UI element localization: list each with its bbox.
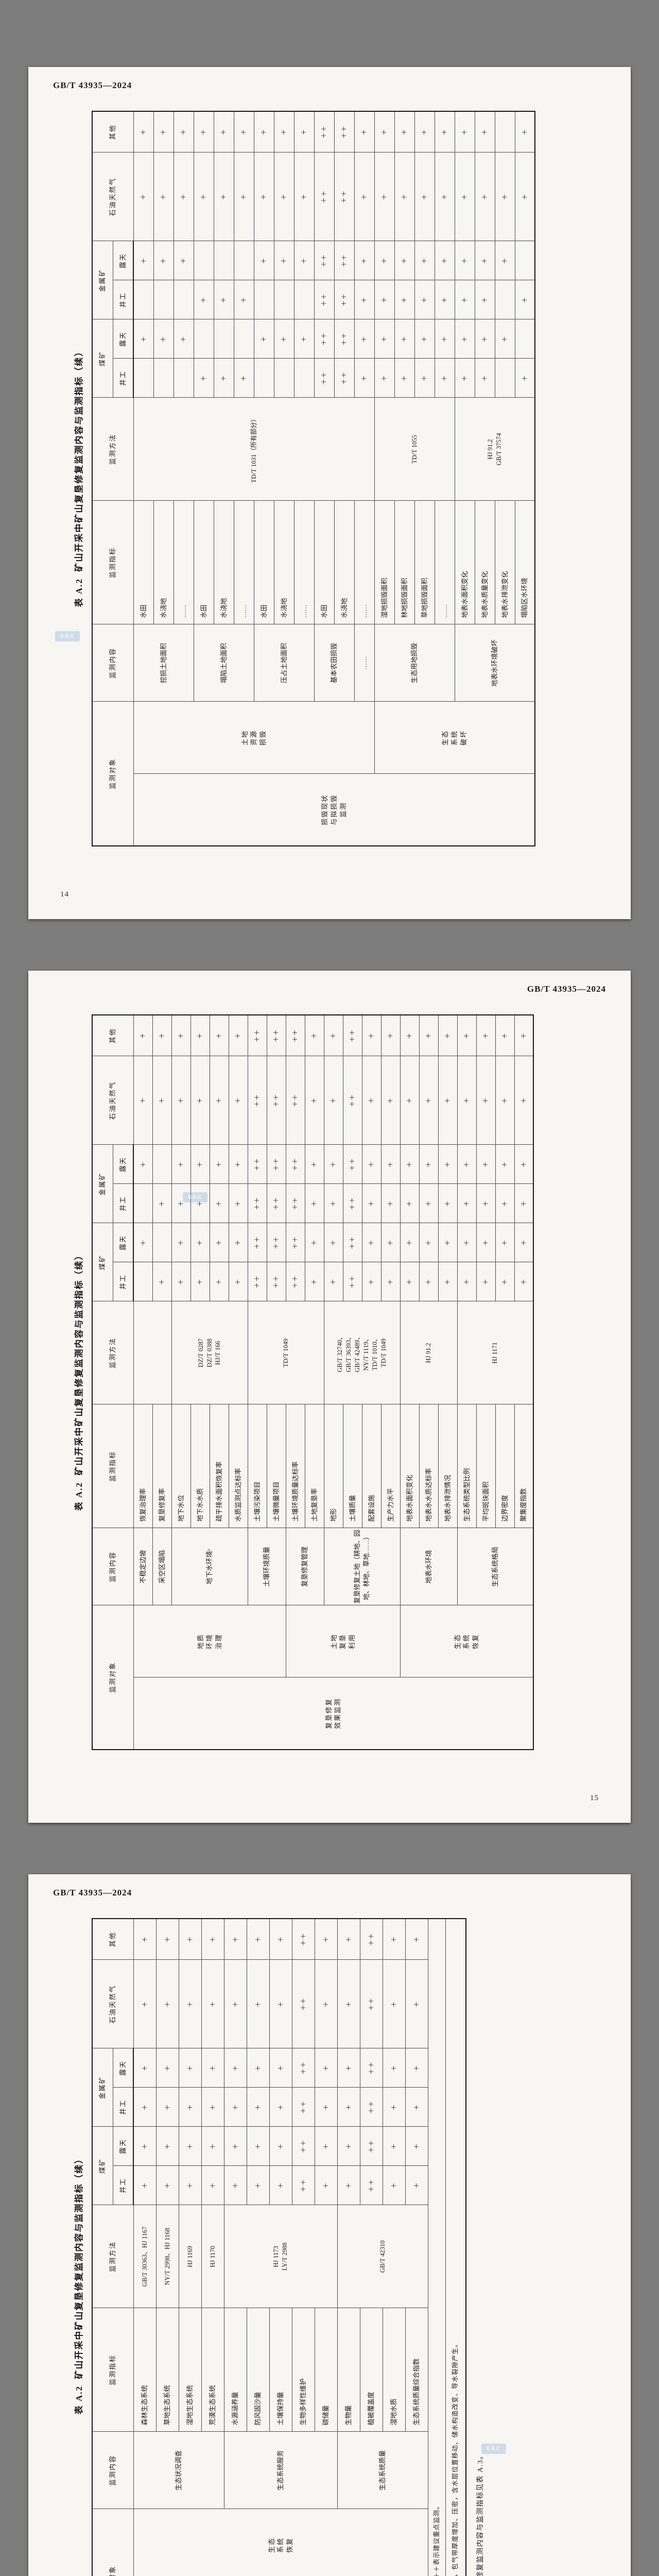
content-cell: 压占土地面积	[254, 624, 314, 702]
mark-cell: ＋	[152, 1184, 171, 1223]
mark-cell: ＋	[495, 1015, 514, 1056]
mark-cell: ＋	[476, 1223, 495, 1262]
mark-cell: ＋＋	[286, 1184, 305, 1223]
mark-cell: ＋	[514, 1184, 533, 1223]
content-cell: 生态系统格局	[457, 1528, 533, 1605]
mark-cell: ＋	[495, 241, 515, 280]
indicator-cell: 湿地损毁面积	[374, 501, 394, 624]
mark-cell: ＋	[455, 152, 475, 241]
mark-cell: ＋	[374, 319, 394, 359]
mark-cell: ＋＋	[248, 1015, 267, 1056]
mark-cell: ＋	[315, 1960, 337, 2048]
indicator-cell: 土壤环境质量达标率	[286, 1404, 305, 1528]
content-cell: 采空区塌陷	[152, 1528, 171, 1605]
mark-cell: ＋＋	[267, 1184, 286, 1223]
mark-cell: ＋	[190, 1145, 210, 1184]
indicator-cell: 塌陷区水环境	[515, 501, 535, 624]
mark-cell: ＋	[269, 2127, 292, 2166]
mark-cell: ＋	[475, 280, 495, 319]
mark-cell: ＋	[383, 1919, 405, 1960]
mark-cell: ＋＋	[334, 280, 354, 319]
mark-cell: ＋	[190, 1184, 210, 1223]
indicator-cell: ……	[435, 501, 455, 624]
mark-cell: ＋	[374, 359, 394, 398]
mark-cell: ＋	[214, 280, 234, 319]
mark-cell: ＋＋	[343, 1015, 362, 1056]
column-header-cell: 金属矿	[92, 1145, 113, 1223]
indicator-cell: 生态系统质量综合指数	[405, 2308, 428, 2432]
mark-cell	[153, 280, 174, 319]
mark-cell: ＋	[455, 280, 475, 319]
mark-cell: ＋	[337, 1919, 360, 1960]
mark-cell: ＋＋	[343, 1262, 362, 1301]
mark-cell: ＋＋	[286, 1145, 305, 1184]
mark-cell: ＋	[274, 319, 294, 359]
mark-cell: ＋	[438, 1262, 457, 1301]
indicator-cell: ……	[354, 501, 374, 624]
method-cell: HJ 1169	[179, 2205, 201, 2308]
indicator-cell: ……	[294, 501, 314, 624]
column-header-cell: 井工	[113, 1184, 133, 1223]
scanned-document-canvas: { "standard_code": "GB/T 43935—2024", "c…	[0, 0, 659, 2576]
mark-cell: ＋	[229, 1262, 248, 1301]
table-reference-note: 矿山开采后矿山复垦修复监测内容与监测指标见表 A.3。	[475, 1914, 485, 2576]
mark-cell: ＋	[254, 319, 274, 359]
mark-cell: ＋	[247, 2166, 269, 2205]
content-cell: 地下水环境ᵃ	[171, 1528, 248, 1605]
mark-cell: ＋＋	[360, 1960, 383, 2048]
column-header-cell: 石油天然气	[92, 1960, 133, 2048]
mark-cell: ＋	[294, 319, 314, 359]
mark-cell: ＋	[174, 152, 194, 241]
mark-cell: ＋	[210, 1015, 229, 1056]
column-header-cell: 露天	[113, 1223, 133, 1262]
indicator-cell: 土壤污染项目	[248, 1404, 267, 1528]
mark-cell: ＋	[394, 111, 414, 152]
mark-cell: ＋	[229, 1184, 248, 1223]
mark-cell: ＋	[381, 1223, 400, 1262]
column-header-cell: 监测对象	[92, 1605, 133, 1750]
mark-cell	[495, 359, 515, 398]
method-cell: DZ/T 0287 DZ/T 0388 HJ/T 166	[171, 1301, 248, 1404]
indicator-cell: 土壤质量	[343, 1404, 362, 1528]
mark-cell	[274, 359, 294, 398]
mark-cell: ＋	[381, 1262, 400, 1301]
mark-cell: ＋	[514, 1015, 533, 1056]
mark-cell: ＋	[457, 1145, 476, 1184]
mark-cell: ＋	[495, 319, 515, 359]
mark-cell	[254, 280, 274, 319]
column-header-cell: 露天	[113, 2048, 133, 2088]
mark-cell: ＋	[515, 359, 535, 398]
mark-cell: ＋＋	[314, 319, 334, 359]
group-label-cell: 生态 系统 恢复	[133, 2509, 428, 2576]
mark-cell: ＋	[152, 1262, 171, 1301]
mark-cell: ＋	[190, 1056, 210, 1145]
column-header-cell: 其他	[92, 1919, 133, 1960]
mark-cell: ＋	[457, 1015, 476, 1056]
mark-cell: ＋	[435, 241, 455, 280]
table-caption: 表 A.2 矿山开采中矿山复垦修复监测内容与监测指标（续）	[72, 1011, 84, 1750]
indicator-cell: 地表水面积变化	[455, 501, 475, 624]
indicator-cell: 水浇地	[214, 501, 234, 624]
mark-cell: ＋	[374, 152, 394, 241]
mark-cell: ＋	[475, 319, 495, 359]
mark-cell	[515, 241, 535, 280]
mark-cell: ＋	[133, 2048, 156, 2088]
indicator-cell: 配套设施	[362, 1404, 381, 1528]
mark-cell: ＋	[354, 280, 374, 319]
method-cell: TD/T 1031（所有部分）	[133, 398, 374, 501]
mark-cell: ＋	[156, 2088, 179, 2127]
mark-cell: ＋	[383, 2048, 405, 2088]
column-header-cell: 金属矿	[92, 241, 113, 319]
mark-cell: ＋	[414, 319, 435, 359]
mark-cell: ＋	[400, 1015, 419, 1056]
mark-cell: ＋	[305, 1015, 324, 1056]
content-cell: 地表水环境	[400, 1528, 457, 1605]
method-cell: TD/T 1049	[248, 1301, 324, 1404]
mark-cell: ＋＋	[286, 1056, 305, 1145]
mark-cell: ＋	[315, 2088, 337, 2127]
mark-cell: ＋	[133, 1015, 152, 1056]
mark-cell: ＋	[476, 1262, 495, 1301]
mark-cell: ＋	[324, 1262, 343, 1301]
column-header-cell: 监测对象	[92, 702, 133, 846]
content-cell: 塌陷土地面积	[194, 624, 254, 702]
mark-cell: ＋	[419, 1056, 438, 1145]
mark-cell: ＋	[374, 111, 394, 152]
mark-cell: ＋	[455, 319, 475, 359]
mark-cell: ＋	[455, 241, 475, 280]
mark-cell: ＋	[457, 1056, 476, 1145]
mark-cell: ＋	[381, 1145, 400, 1184]
mark-cell: ＋	[190, 1262, 210, 1301]
mark-cell: ＋＋	[267, 1223, 286, 1262]
mark-cell: ＋	[234, 111, 254, 152]
mark-cell: ＋	[419, 1184, 438, 1223]
mark-cell: ＋	[133, 1223, 152, 1262]
mark-cell: ＋	[405, 1919, 428, 1960]
mark-cell: ＋＋	[248, 1223, 267, 1262]
mark-cell: ＋	[201, 2166, 224, 2205]
mark-cell: ＋	[133, 1919, 156, 1960]
mark-cell: ＋＋	[334, 111, 354, 152]
indicator-cell: ……	[234, 501, 254, 624]
mark-cell: ＋	[153, 241, 174, 280]
mark-cell: ＋	[224, 1960, 247, 2048]
mark-cell: ＋	[457, 1262, 476, 1301]
mark-cell: ＋	[438, 1145, 457, 1184]
mark-cell: ＋	[438, 1184, 457, 1223]
group-label-cell: 土地 资源 损毁	[133, 702, 374, 774]
column-header-cell: 煤矿	[92, 319, 113, 398]
mark-cell: ＋	[179, 1919, 201, 1960]
mark-cell: ＋＋	[267, 1015, 286, 1056]
indicator-cell: 生态系统类型比例	[457, 1404, 476, 1528]
mark-cell: ＋	[224, 2088, 247, 2127]
mark-cell	[515, 319, 535, 359]
column-header-cell: 监测内容	[92, 1528, 133, 1605]
indicator-cell: ……	[174, 501, 194, 624]
mark-cell: ＋	[247, 2048, 269, 2088]
indicator-cell: 土壤保持量	[269, 2308, 292, 2432]
mark-cell: ＋	[254, 111, 274, 152]
mark-cell: ＋	[405, 2127, 428, 2166]
mark-cell: ＋＋	[314, 111, 334, 152]
mark-cell: ＋	[210, 1262, 229, 1301]
mark-cell: ＋＋	[292, 1919, 315, 1960]
mark-cell: ＋	[171, 1184, 190, 1223]
note-cell: ᵃ 地下水含水层位缺失，包气带厚度增加、压密，含水层位置移动、储水构造改变、导水…	[445, 1919, 466, 2576]
mark-cell: ＋	[495, 152, 515, 241]
mark-cell: ＋	[419, 1015, 438, 1056]
mark-cell: ＋	[414, 280, 435, 319]
column-header-cell: 石油天然气	[92, 152, 133, 241]
mark-cell: ＋	[476, 1184, 495, 1223]
table-caption: 表 A.2 矿山开采中矿山复垦修复监测内容与监测指标（续）	[72, 107, 84, 846]
mark-cell: ＋	[210, 1145, 229, 1184]
mark-cell: ＋	[201, 2088, 224, 2127]
mark-cell: ＋	[210, 1184, 229, 1223]
indicator-cell: 土壤微量项目	[267, 1404, 286, 1528]
indicator-cell: 水浇地	[274, 501, 294, 624]
mark-cell: ＋	[305, 1262, 324, 1301]
mark-cell: ＋	[383, 1960, 405, 2048]
content-cell: 生态用地损毁	[374, 624, 455, 702]
content-cell: 复垦修复管理	[286, 1528, 324, 1605]
mark-cell: ＋	[324, 1015, 343, 1056]
mark-cell	[174, 280, 194, 319]
mark-cell: ＋	[153, 111, 174, 152]
content-cell: 生态系统服务	[224, 2432, 337, 2509]
column-header-cell: 监测对象	[92, 2509, 133, 2576]
mark-cell: ＋	[362, 1056, 381, 1145]
mark-cell: ＋	[337, 2127, 360, 2166]
column-header-cell: 监测指标	[92, 1404, 133, 1528]
mark-cell: ＋	[362, 1262, 381, 1301]
mark-cell: ＋＋	[343, 1145, 362, 1184]
mark-cell: ＋	[354, 111, 374, 152]
content-cell: 挖损土地面积	[133, 624, 194, 702]
mark-cell: ＋	[495, 1145, 514, 1184]
note-cell: 注：＋表示建议监测，＋＋表示建议重点监测。	[428, 1919, 445, 2576]
mark-cell: ＋	[247, 1919, 269, 1960]
mark-cell	[495, 111, 515, 152]
mark-cell: ＋	[152, 1056, 171, 1145]
mark-cell: ＋＋	[343, 1184, 362, 1223]
mark-cell: ＋	[269, 1960, 292, 2048]
mark-cell: ＋＋	[267, 1145, 286, 1184]
mark-cell: ＋＋	[334, 241, 354, 280]
content-cell: 基本农田损毁	[314, 624, 354, 702]
mark-cell: ＋	[194, 152, 214, 241]
mark-cell: ＋	[201, 1919, 224, 1960]
mark-cell: ＋	[156, 2048, 179, 2088]
mark-cell: ＋	[194, 359, 214, 398]
mark-cell: ＋	[179, 2166, 201, 2205]
mark-cell: ＋	[476, 1056, 495, 1145]
indicator-cell: 生物量	[337, 2308, 360, 2432]
mark-cell: ＋	[438, 1015, 457, 1056]
running-header: GB/T 43935—2024	[53, 80, 132, 91]
mark-cell: ＋＋	[267, 1262, 286, 1301]
mark-cell: ＋	[229, 1056, 248, 1145]
mark-cell: ＋	[438, 1056, 457, 1145]
mark-cell	[133, 359, 153, 398]
indicator-cell: 水田	[314, 501, 334, 624]
mark-cell	[133, 1262, 152, 1301]
mark-cell: ＋	[229, 1015, 248, 1056]
mark-cell: ＋＋	[286, 1262, 305, 1301]
content-cell: 土壤环境质量	[248, 1528, 286, 1605]
mark-cell: ＋	[455, 359, 475, 398]
column-header-cell: 监测方法	[92, 398, 133, 501]
mark-cell: ＋	[152, 1015, 171, 1056]
column-header-cell: 监测指标	[92, 501, 133, 624]
indicator-cell: 地形	[324, 1404, 343, 1528]
table-caption: 表 A.2 矿山开采中矿山复垦修复监测内容与监测指标（续）	[72, 1914, 84, 2576]
mark-cell: ＋＋	[248, 1262, 267, 1301]
mark-cell: ＋	[210, 1056, 229, 1145]
mark-cell: ＋	[414, 241, 435, 280]
mark-cell: ＋	[315, 2127, 337, 2166]
mark-cell: ＋	[354, 359, 374, 398]
indicator-cell: 土地复垦率	[305, 1404, 324, 1528]
mark-cell: ＋	[362, 1145, 381, 1184]
indicator-cell: 湿地生态系统	[179, 2308, 201, 2432]
method-cell: HJ 1171	[457, 1301, 533, 1404]
rotated-table-area: 表 A.2 矿山开采中矿山复垦修复监测内容与监测指标（续） 监测对象监测内容监测…	[72, 1011, 544, 1750]
mark-cell: ＋	[400, 1262, 419, 1301]
mark-cell: ＋	[337, 1960, 360, 2048]
indicator-cell: 水田	[254, 501, 274, 624]
mark-cell: ＋	[224, 2048, 247, 2088]
column-header-cell: 金属矿	[92, 2048, 113, 2127]
mark-cell: ＋＋	[360, 2127, 383, 2166]
mark-cell: ＋	[269, 1919, 292, 1960]
mark-cell: ＋	[514, 1223, 533, 1262]
mark-cell: ＋	[435, 152, 455, 241]
mark-cell: ＋	[515, 280, 535, 319]
indicator-cell: 湿地水质	[383, 2308, 405, 2432]
indicator-cell: 平均斑块面积	[476, 1404, 495, 1528]
mark-cell: ＋	[475, 111, 495, 152]
mark-cell: ＋	[354, 241, 374, 280]
mark-cell: ＋	[515, 111, 535, 152]
mark-cell: ＋	[133, 111, 153, 152]
mark-cell: ＋	[294, 111, 314, 152]
mark-cell: ＋＋	[292, 2166, 315, 2205]
indicator-cell: 水质监测点达标率	[229, 1404, 248, 1528]
method-cell: HJ 91.2	[400, 1301, 457, 1404]
mark-cell: ＋	[400, 1145, 419, 1184]
mark-cell: ＋	[438, 1223, 457, 1262]
mark-cell	[234, 241, 254, 280]
mark-cell: ＋	[274, 111, 294, 152]
mark-cell	[294, 280, 314, 319]
running-header: GB/T 43935—2024	[53, 1888, 132, 1898]
method-cell: HJ 1170	[201, 2205, 224, 2308]
mark-cell: ＋	[210, 1223, 229, 1262]
mark-cell: ＋	[269, 2048, 292, 2088]
mark-cell: ＋	[495, 1184, 514, 1223]
mark-cell: ＋	[419, 1145, 438, 1184]
mark-cell: ＋	[224, 1919, 247, 1960]
mark-cell: ＋	[419, 1223, 438, 1262]
column-header-cell: 石油天然气	[92, 1056, 133, 1145]
mark-cell: ＋＋	[334, 319, 354, 359]
mark-cell: ＋	[179, 2127, 201, 2166]
content-cell: ……	[354, 624, 374, 702]
mark-cell: ＋＋	[248, 1145, 267, 1184]
mark-cell: ＋	[234, 359, 254, 398]
indicator-cell: 碳储量	[315, 2308, 337, 2432]
mark-cell: ＋	[394, 359, 414, 398]
mark-cell: ＋	[247, 1960, 269, 2048]
mark-cell: ＋	[394, 319, 414, 359]
mark-cell: ＋	[133, 152, 153, 241]
mark-cell: ＋	[174, 319, 194, 359]
mark-cell: ＋	[324, 1223, 343, 1262]
mark-cell: ＋	[133, 2127, 156, 2166]
mark-cell: ＋	[133, 2166, 156, 2205]
indicator-cell: 地表水水质达标率	[419, 1404, 438, 1528]
column-header-cell: 监测指标	[92, 2308, 133, 2432]
group-label-cell: 生态 系统 破坏	[374, 702, 535, 774]
mark-cell: ＋	[305, 1223, 324, 1262]
mark-cell: ＋	[475, 359, 495, 398]
mark-cell: ＋	[133, 241, 153, 280]
mark-cell: ＋＋	[360, 2048, 383, 2088]
column-header-cell: 监测内容	[92, 2432, 133, 2509]
group-label-cell: 复垦修复 效果监测	[133, 1677, 533, 1750]
group-label-cell: 生态 系统 恢复	[400, 1605, 533, 1677]
indicator-cell: 植被覆盖度	[360, 2308, 383, 2432]
mark-cell	[174, 359, 194, 398]
mark-cell: ＋	[457, 1184, 476, 1223]
mark-cell: ＋	[374, 280, 394, 319]
mark-cell: ＋	[214, 359, 234, 398]
mark-cell: ＋	[362, 1184, 381, 1223]
mark-cell: ＋	[194, 111, 214, 152]
document-page: GB/T 43935—2024 表 A.2 矿山开采中矿山复垦修复监测内容与监测…	[28, 1874, 631, 2576]
mark-cell: ＋	[247, 2127, 269, 2166]
indicator-cell: 地下水水质	[190, 1404, 210, 1528]
mark-cell	[133, 280, 153, 319]
mark-cell	[153, 359, 174, 398]
sac-stamp: SAC	[55, 631, 80, 641]
mark-cell: ＋	[171, 1015, 190, 1056]
column-header-cell: 露天	[113, 241, 133, 280]
mark-cell: ＋	[435, 280, 455, 319]
mark-cell: ＋	[153, 319, 174, 359]
data-table: 监测对象监测内容监测指标监测方法煤矿金属矿石油天然气其他井工露天井工露天复垦修复…	[92, 1011, 534, 1750]
content-cell: 复垦修复土地（耕地、园地、林地、草地……）	[324, 1528, 400, 1605]
mark-cell	[194, 241, 214, 280]
mark-cell: ＋	[133, 2088, 156, 2127]
rotated-table-area: 表 A.2 矿山开采中矿山复垦修复监测内容与监测指标（续） 监测对象监测内容监测…	[72, 107, 544, 846]
indicator-cell: 草地损毁面积	[414, 501, 435, 624]
indicator-cell: 水田	[194, 501, 214, 624]
mark-cell: ＋	[435, 111, 455, 152]
method-cell: HJ 1173 LY/T 2988	[224, 2205, 337, 2308]
indicator-cell: 生物多样性维护	[292, 2308, 315, 2432]
indicator-cell: 草地生态系统	[156, 2308, 179, 2432]
content-cell: 不稳定边坡	[133, 1528, 152, 1605]
mark-cell: ＋＋	[360, 2088, 383, 2127]
indicator-cell: 水源涵养量	[224, 2308, 247, 2432]
